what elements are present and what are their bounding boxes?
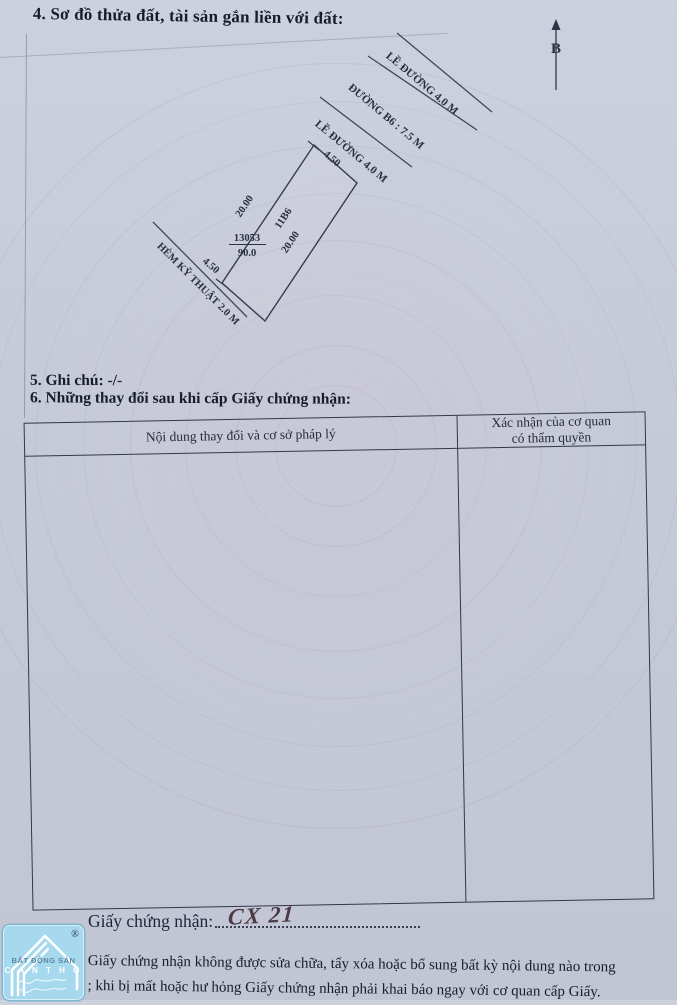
certificate-number-line: Giấy chứng nhận: CX 21 <box>88 911 420 932</box>
certificate-number-handwritten: CX 21 <box>227 901 296 931</box>
logo-script-line-1 <box>19 979 66 984</box>
parcel-area-label: 90.0 <box>238 248 256 259</box>
footer-note: Giấy chứng nhận không được sửa chữa, tẩy… <box>87 949 674 1005</box>
road-name-label: ĐƯỜNG B6 : 7.5 M <box>346 82 427 153</box>
certificate-number-label: Giấy chứng nhận: <box>88 911 213 932</box>
section5-heading: 5. Ghi chú: -/- <box>30 372 122 390</box>
changes-table-body-row <box>25 445 653 909</box>
north-arrow: B <box>551 19 561 90</box>
col2-header-line2: có thẩm quyền <box>512 429 592 446</box>
changes-table-col2-header: Xác nhận của cơ quan có thẩm quyền <box>458 412 646 447</box>
registered-mark: ® <box>71 929 79 940</box>
agency-logo: ® BẤT ĐỘNG SẢN C A N T H O <box>3 925 84 1000</box>
parcel-number-label: 13053 <box>234 233 260 244</box>
road-label-top: LỀ ĐƯỜNG 4.0 M <box>383 49 461 117</box>
north-label: B <box>551 41 561 57</box>
logo-name-line2: C A N T H O <box>3 966 84 975</box>
changes-table-col2-cell <box>458 445 653 901</box>
changes-table: Nội dung thay đổi và cơ sở pháp lý Xác n… <box>24 411 655 910</box>
changes-table-col1-cell <box>25 449 466 910</box>
col2-header-line1: Xác nhận của cơ quan <box>491 413 611 431</box>
parcel-diagram: B LỀ ĐƯỜNG 4.0 M ĐƯỜNG B6 : 7.5 M LỀ ĐƯỜ… <box>0 0 677 380</box>
dim-left: 20.00 <box>234 194 256 220</box>
logo-name-line1: BẤT ĐỘNG SẢN <box>3 956 84 965</box>
section6-heading: 6. Những thay đổi sau khi cấp Giấy chứng… <box>30 389 351 408</box>
